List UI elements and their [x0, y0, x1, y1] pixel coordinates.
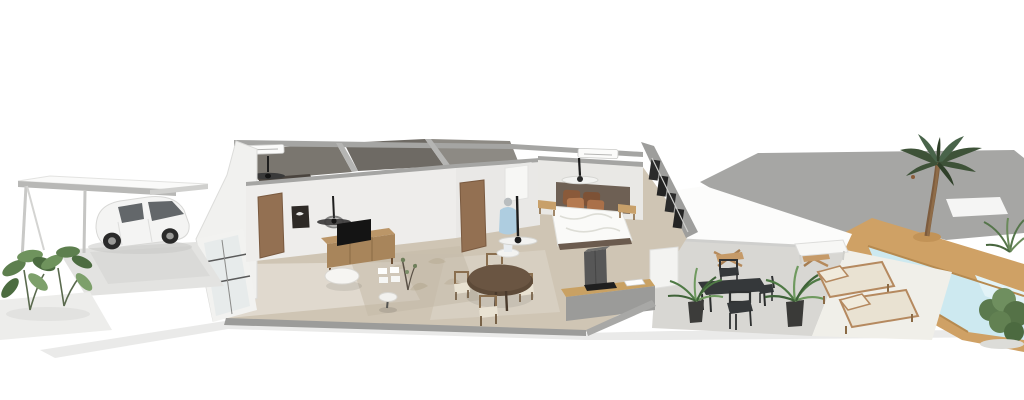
coffee-table[interactable] [325, 268, 362, 291]
shrub-shadow [6, 307, 90, 321]
mannequin-head [504, 198, 512, 206]
white-cabinet[interactable] [505, 162, 532, 202]
table-top [379, 293, 397, 302]
living-door[interactable] [258, 193, 284, 258]
plant-pot [786, 300, 804, 327]
ac-unit-bedroom[interactable] [578, 148, 618, 158]
wall-art[interactable] [291, 206, 309, 229]
house [196, 139, 698, 336]
table-top [325, 268, 359, 284]
dining-door[interactable] [460, 180, 486, 252]
render-viewport [0, 0, 1024, 400]
car-wheel-hub [166, 233, 174, 240]
leg [843, 251, 844, 260]
mannequin-shirt [499, 207, 517, 235]
yard-light-dot [911, 175, 915, 179]
dining-table-surface [469, 265, 531, 292]
leg [710, 295, 711, 312]
plant-pot [688, 300, 704, 323]
leg [800, 255, 801, 264]
backyard-white-pad [946, 197, 1008, 217]
carport-post [84, 191, 85, 253]
car-wheel-hub [108, 237, 116, 245]
floorplan-3d-scene [0, 0, 1024, 400]
